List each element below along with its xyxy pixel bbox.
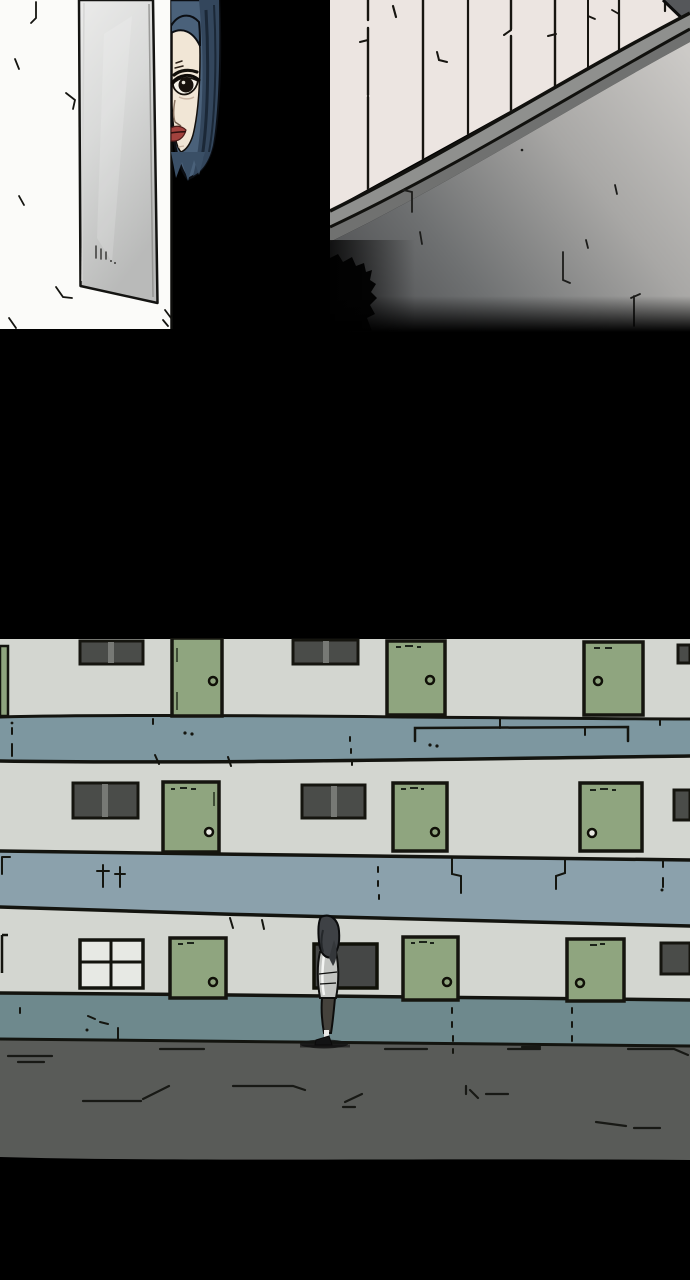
green-door: [172, 638, 222, 716]
panel-building-corner: [330, 0, 690, 332]
comic-page: [0, 0, 690, 1280]
green-door: [387, 641, 445, 715]
window-light: [80, 940, 143, 988]
window: [293, 640, 358, 664]
green-door: [580, 783, 642, 851]
panel2-left-fade: [330, 240, 415, 332]
leaning-mirror: [79, 0, 158, 303]
green-door: [403, 937, 458, 1000]
panel-apartment-block: [0, 638, 690, 1163]
window-partial: [674, 790, 690, 820]
green-door: [393, 783, 447, 851]
green-door: [567, 939, 624, 1001]
green-door: [163, 782, 219, 852]
window: [73, 783, 138, 818]
green-door: [170, 938, 226, 998]
window: [80, 641, 143, 664]
panel-woman-peeking: [0, 0, 330, 332]
green-door: [584, 642, 643, 715]
window-partial: [661, 943, 690, 974]
window-partial: [678, 645, 690, 663]
window: [302, 785, 365, 818]
